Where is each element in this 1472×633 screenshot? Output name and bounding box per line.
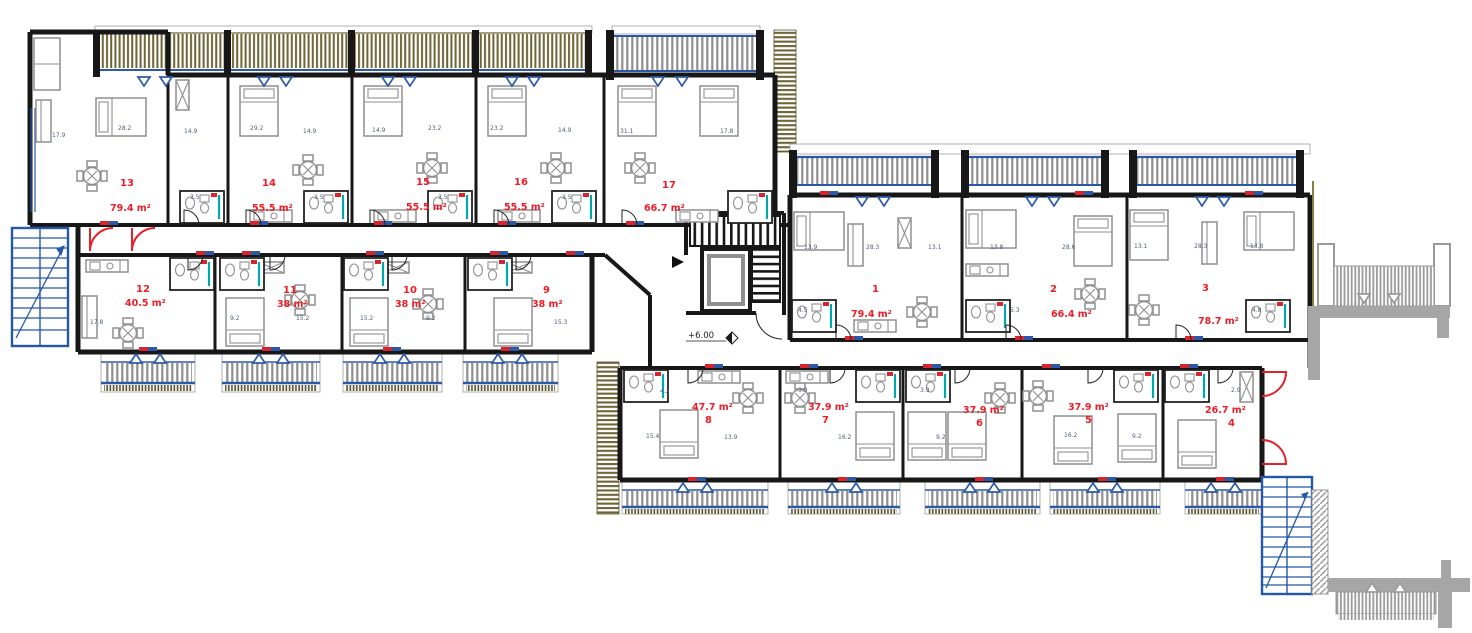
- room-area: 3.9: [798, 387, 808, 394]
- unit-number: 4: [1228, 418, 1235, 429]
- unit-area: 66.4 m²: [1051, 309, 1092, 320]
- floor-plan-canvas: +6.00: [0, 0, 1472, 633]
- unit-area: 38 m²: [277, 299, 308, 310]
- level-marker-label: +6.00: [688, 331, 714, 341]
- unit-number: 2: [1050, 284, 1057, 295]
- unit-area: 38 m²: [395, 299, 426, 310]
- unit-area: 37.9 m²: [1068, 402, 1109, 413]
- unit-area: 79.4 m²: [110, 203, 151, 214]
- stair-external-bottom-right: [1262, 477, 1312, 594]
- unit-number: 12: [136, 284, 150, 295]
- stair-treads-right: [752, 248, 780, 302]
- elevator-car: [709, 256, 743, 304]
- room-area: 15.2: [296, 315, 310, 322]
- room-area: 13.9: [724, 434, 738, 441]
- room-area: 13.1: [928, 244, 942, 251]
- room-area: 29.2: [250, 125, 264, 132]
- stair-external-left: [12, 228, 68, 346]
- room-area: 4.8: [1252, 307, 1262, 314]
- room-area: 15.4: [646, 433, 660, 440]
- balcony-unit-17: [606, 26, 764, 80]
- unit-number: 10: [403, 285, 417, 296]
- balcony-strip-top-right: [789, 144, 1310, 198]
- unit-area: 79.4 m²: [851, 309, 892, 320]
- unit-number: 11: [283, 285, 297, 296]
- room-area: 28.3: [1194, 243, 1208, 250]
- unit-number: 15: [416, 177, 430, 188]
- room-area: 5.3: [1010, 307, 1020, 314]
- balconies-bottom-right: [622, 482, 1262, 514]
- room-area: 13.9: [804, 244, 818, 251]
- unit-area: 47.7 m²: [692, 402, 733, 413]
- unit-area: 55.5 m²: [504, 202, 545, 213]
- room-area: 9.2: [1132, 433, 1142, 440]
- room-area: 23.2: [428, 125, 442, 132]
- unit-number: 5: [1085, 415, 1092, 426]
- room-area: 9.2: [936, 434, 946, 441]
- unit-area: 26.7 m²: [1205, 405, 1246, 416]
- room-area: 15.2: [360, 315, 374, 322]
- room-area: 17.9: [52, 132, 66, 139]
- unit-area: 37.9 m²: [808, 402, 849, 413]
- room-area: 14.9: [184, 128, 198, 135]
- room-area: 3.5: [562, 194, 572, 201]
- unit-number: 7: [822, 415, 829, 426]
- room-area: 28.6: [1062, 244, 1076, 251]
- unit-area: 40.5 m²: [125, 298, 166, 309]
- unit-number: 9: [543, 285, 550, 296]
- unit-number: 14: [262, 178, 276, 189]
- room-area: 4.5: [798, 307, 808, 314]
- unit-number: 8: [705, 415, 712, 426]
- elevator-stair-core: [672, 216, 782, 339]
- room-area: 14.9: [372, 127, 386, 134]
- room-area: 14.9: [558, 127, 572, 134]
- floor-plan: +6.00: [0, 0, 1472, 633]
- room-area: 13.1: [1134, 243, 1148, 250]
- unit-area: 78.7 m²: [1198, 316, 1239, 327]
- room-area: 16.2: [838, 434, 852, 441]
- unit-area: 55.5 m²: [252, 203, 293, 214]
- room-area: 13.8: [990, 244, 1004, 251]
- room-area: 28.3: [866, 244, 880, 251]
- unit-number: 13: [120, 178, 134, 189]
- room-area: 2.9: [1231, 387, 1241, 394]
- room-area: 3.5: [314, 194, 324, 201]
- room-area: 9.2: [230, 315, 240, 322]
- unit-number: 17: [662, 180, 676, 191]
- room-area: 3.9: [920, 387, 930, 394]
- balconies-bottom-left: [101, 352, 558, 392]
- level-marker: +6.00: [686, 331, 738, 344]
- room-area: 3.5: [190, 194, 200, 201]
- room-area: 15.3: [554, 319, 568, 326]
- room-area: 9.2: [426, 315, 436, 322]
- external-walkway-bottom-right: [1312, 490, 1470, 628]
- room-area: 17.8: [90, 319, 104, 326]
- unit-number: 16: [514, 177, 528, 188]
- direction-arrow-icon: [672, 256, 684, 268]
- unit-area: 38 m²: [532, 299, 563, 310]
- room-area: 4.2: [660, 388, 670, 395]
- unit-number: 3: [1202, 283, 1209, 294]
- unit-area: 66.7 m²: [644, 203, 685, 214]
- room-area: 16.2: [1064, 432, 1078, 439]
- unit-area: 55.5 m²: [406, 202, 447, 213]
- external-balcony-mid-right: [1308, 181, 1450, 380]
- room-area: 31.1: [620, 128, 634, 135]
- unit-number: 6: [976, 418, 983, 429]
- room-area: 28.2: [118, 125, 132, 132]
- unit-area: 37.9 m²: [963, 405, 1004, 416]
- room-area: 13.8: [1250, 243, 1264, 250]
- room-area: 14.9: [303, 128, 317, 135]
- unit-number: 1: [872, 284, 879, 295]
- room-area: 3.5: [438, 194, 448, 201]
- room-area: 23.2: [490, 125, 504, 132]
- room-area: 17.8: [720, 128, 734, 135]
